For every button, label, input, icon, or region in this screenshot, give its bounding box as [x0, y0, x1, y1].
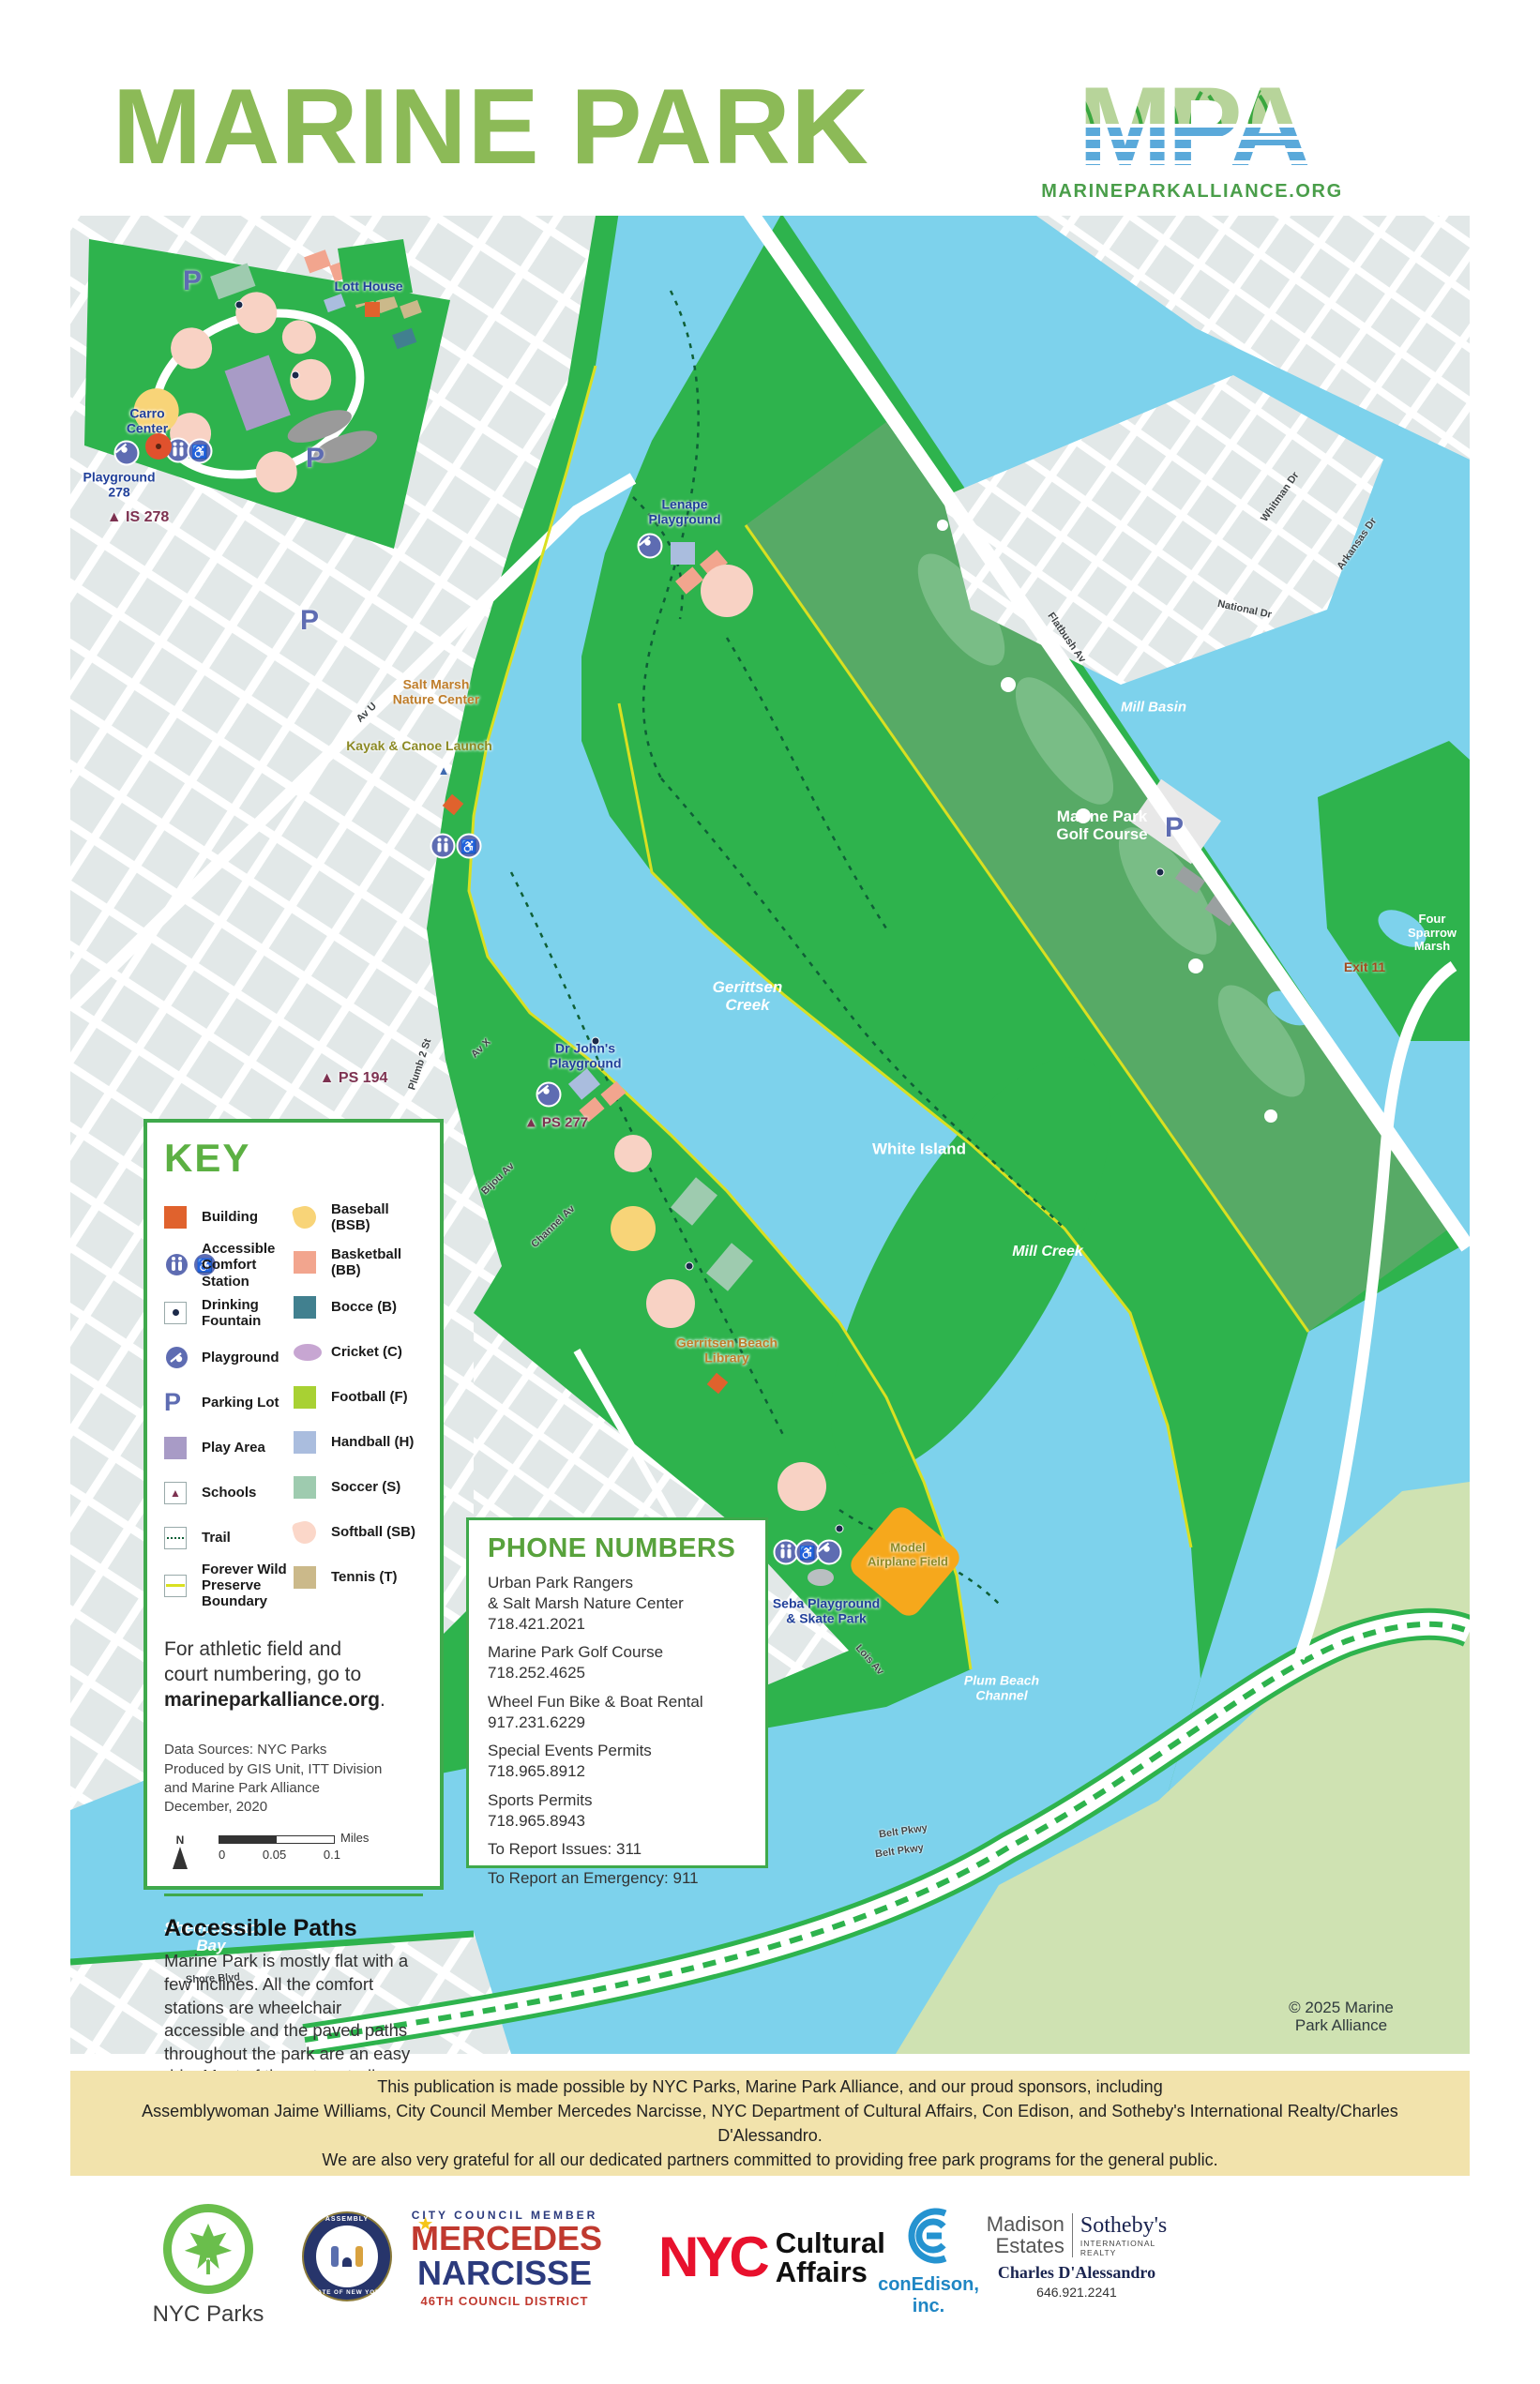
- legend-swatch-icon: [294, 1206, 331, 1229]
- con-edison-arcs-icon: [898, 2206, 959, 2266]
- mercedes-narcisse-logo: CITY COUNCIL MEMBER ★MERCEDES NARCISSE 4…: [411, 2209, 598, 2308]
- sponsor-band: This publication is made possible by NYC…: [70, 2071, 1470, 2176]
- sponsor-text-line: This publication is made possible by NYC…: [98, 2075, 1442, 2099]
- legend-item: Handball (H): [294, 1421, 423, 1464]
- legend-item: Soccer (S): [294, 1466, 423, 1509]
- scale-tick: 0: [219, 1848, 225, 1862]
- legend-label: Play Area: [202, 1440, 265, 1456]
- scale-unit: Miles: [340, 1831, 369, 1845]
- key-title: KEY: [164, 1136, 423, 1181]
- legend-label: Parking Lot: [202, 1395, 279, 1411]
- phone-entry: Special Events Permits718.965.8912: [488, 1741, 758, 1782]
- legend-item: Bocce (B): [294, 1286, 423, 1329]
- legend-label: Building: [202, 1209, 258, 1225]
- key-note-url: marineparkalliance.org: [164, 1689, 380, 1711]
- legend-swatch-icon: [164, 1437, 202, 1459]
- legend-item: Forever Wild Preserve Boundary: [164, 1562, 294, 1610]
- legend-swatch-icon: ▲: [164, 1482, 202, 1504]
- legend-item: Drinking Fountain: [164, 1291, 294, 1335]
- legend-item: Play Area: [164, 1426, 294, 1470]
- legend-swatch-icon: [294, 1476, 331, 1499]
- legend-item: Building: [164, 1196, 294, 1239]
- key-column-right: Baseball (BSB)Basketball (BB)Bocce (B)Cr…: [294, 1196, 423, 1612]
- phone-numbers-title: PHONE NUMBERS: [488, 1533, 758, 1564]
- legend-item: Playground: [164, 1336, 294, 1380]
- sothebys-logo: MadisonEstates Sotheby's INTERNATIONAL R…: [992, 2213, 1161, 2300]
- ny-assembly-seal-logo: ASSEMBLY STATE OF NEW YORK: [302, 2211, 392, 2301]
- legend-swatch-icon: [294, 1431, 331, 1454]
- sponsor-logos: NYC Parks ASSEMBLY STATE OF NEW YORK CIT…: [0, 2185, 1540, 2354]
- nyc-parks-logo: NYC Parks: [152, 2204, 264, 2328]
- sponsor-text-line: Assemblywoman Jaime Williams, City Counc…: [98, 2099, 1442, 2148]
- mpa-logo-url: MARINEPARKALLIANCE.ORG: [1036, 181, 1348, 203]
- legend-item: ♿Accessible Comfort Station: [164, 1241, 294, 1290]
- data-source-line: Produced by GIS Unit, ITT Division: [164, 1760, 423, 1779]
- star-icon: ★: [418, 2216, 432, 2232]
- mpa-logo-art: MPA: [1036, 79, 1348, 174]
- phone-numbers-box: PHONE NUMBERS Urban Park Rangers& Salt M…: [466, 1517, 768, 1868]
- nyc-cultural-affairs-logo: NYC CulturalAffairs: [658, 2225, 885, 2289]
- phone-list: Urban Park Rangers& Salt Marsh Nature Ce…: [488, 1573, 758, 1889]
- legend-label: Schools: [202, 1485, 256, 1501]
- poster-page: MARINE PARK MPA MARINEPARKALLIANCE.ORG: [0, 0, 1540, 2384]
- phone-entry: To Report Issues: 311: [488, 1839, 758, 1860]
- key-divider: [164, 1894, 423, 1896]
- scale-tick: 0.05: [263, 1848, 286, 1862]
- key-column-left: Building♿Accessible Comfort StationDrink…: [164, 1196, 294, 1612]
- legend-label: Handball (H): [331, 1434, 414, 1450]
- data-source-line: December, 2020: [164, 1798, 423, 1817]
- accessible-paths-heading: Accessible Paths: [164, 1915, 423, 1942]
- legend-swatch-icon: [164, 1345, 202, 1370]
- legend-label: Bocce (B): [331, 1299, 397, 1315]
- legend-item: Tennis (T): [294, 1556, 423, 1599]
- legend-swatch-icon: [294, 1344, 331, 1361]
- key-note: For athletic field and court numbering, …: [164, 1637, 423, 1713]
- legend-label: Drinking Fountain: [202, 1297, 294, 1330]
- legend-label: Basketball (BB): [331, 1246, 423, 1279]
- data-source-line: and Marine Park Alliance: [164, 1779, 423, 1798]
- legend-item: Baseball (BSB): [294, 1196, 423, 1239]
- legend-label: Baseball (BSB): [331, 1201, 423, 1234]
- legend-label: Trail: [202, 1530, 231, 1546]
- sponsor-text-line: We are also very grateful for all our de…: [98, 2148, 1442, 2172]
- legend-swatch-icon: ♿: [164, 1252, 202, 1277]
- legend-label: Tennis (T): [331, 1569, 398, 1585]
- key-data-sources: Data Sources: NYC ParksProduced by GIS U…: [164, 1741, 423, 1817]
- phone-entry: Wheel Fun Bike & Boat Rental917.231.6229: [488, 1692, 758, 1733]
- phone-entry: Sports Permits718.965.8943: [488, 1790, 758, 1832]
- legend-swatch-icon: [294, 1296, 331, 1319]
- legend-item: ▲Schools: [164, 1471, 294, 1515]
- legend-item: Trail: [164, 1516, 294, 1560]
- north-arrow-icon: N: [164, 1833, 196, 1869]
- map-key: KEY Building♿Accessible Comfort StationD…: [143, 1119, 444, 1890]
- legend-swatch-icon: [164, 1206, 202, 1229]
- legend-swatch-icon: [164, 1302, 202, 1324]
- legend-item: Cricket (C): [294, 1331, 423, 1374]
- data-source-line: Data Sources: NYC Parks: [164, 1741, 423, 1759]
- legend-label: Accessible Comfort Station: [202, 1241, 294, 1290]
- legend-item: Basketball (BB): [294, 1241, 423, 1284]
- legend-label: Softball (SB): [331, 1524, 415, 1540]
- page-title: MARINE PARK: [113, 66, 869, 189]
- scale-bar: N Miles 00.050.1: [164, 1833, 423, 1869]
- legend-swatch-icon: [164, 1575, 202, 1597]
- legend-swatch-icon: [164, 1527, 202, 1549]
- legend-label: Football (F): [331, 1389, 408, 1405]
- phone-entry: Urban Park Rangers& Salt Marsh Nature Ce…: [488, 1573, 758, 1634]
- phone-entry: Marine Park Golf Course718.252.4625: [488, 1642, 758, 1683]
- con-edison-logo: conEdison, inc.: [872, 2206, 985, 2317]
- legend-label: Cricket (C): [331, 1344, 402, 1360]
- legend-label: Playground: [202, 1350, 279, 1366]
- legend-swatch-icon: [294, 1386, 331, 1409]
- legend-item: Football (F): [294, 1376, 423, 1419]
- legend-swatch-icon: P: [164, 1388, 202, 1417]
- legend-item: PParking Lot: [164, 1381, 294, 1425]
- legend-label: Soccer (S): [331, 1479, 400, 1495]
- mpa-logo: MPA MARINEPARKALLIANCE.ORG: [1036, 79, 1348, 203]
- phone-entry: To Report an Emergency: 911: [488, 1868, 758, 1889]
- legend-label: Forever Wild Preserve Boundary: [202, 1562, 294, 1610]
- legend-swatch-icon: [294, 1566, 331, 1589]
- nyc-parks-leaf-icon: [163, 2204, 253, 2294]
- legend-item: Softball (SB): [294, 1511, 423, 1554]
- scale-tick: 0.1: [324, 1848, 340, 1862]
- legend-swatch-icon: [294, 1251, 331, 1274]
- legend-swatch-icon: [294, 1521, 331, 1544]
